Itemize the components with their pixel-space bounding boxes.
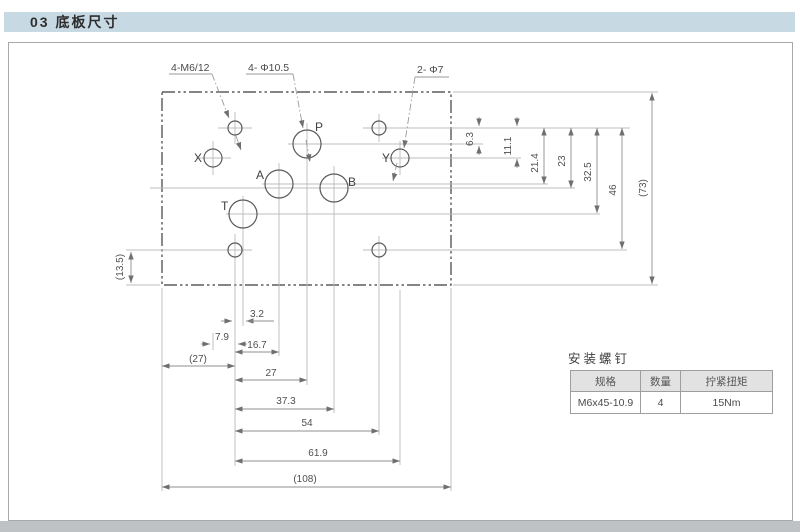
cell-spec: M6x45-10.9 (571, 392, 641, 414)
port-label-y: Y (382, 151, 390, 165)
dim-27-ref: (27) (189, 354, 207, 365)
callout-phi7: 2- Φ7 (417, 64, 444, 76)
col-header-torque: 拧紧扭矩 (681, 371, 773, 392)
dim-6-3: 6.3 (465, 132, 476, 146)
center-lines (126, 112, 630, 466)
dim-61-9: 61.9 (308, 448, 328, 459)
dims-left: (13.5) (115, 252, 131, 283)
dim-23: 23 (557, 155, 568, 167)
dims-bottom: 3.2 7.9 16.7 (27) 27 37.3 54 61.9 (108) (162, 309, 451, 487)
dim-7-9: 7.9 (215, 332, 229, 343)
dim-54: 54 (301, 418, 313, 429)
port-label-x: X (194, 151, 202, 165)
dim-32-5: 32.5 (583, 162, 594, 182)
dims-right: 6.3 11.1 21.4 23 32.5 46 (73) (465, 93, 652, 284)
port-labels: P A B T X Y (194, 120, 390, 213)
port-label-a: A (256, 168, 264, 182)
port-label-b: B (348, 175, 356, 189)
col-header-spec: 规格 (571, 371, 641, 392)
mounting-screw-title: 安装螺钉 (568, 348, 630, 367)
dim-46: 46 (608, 184, 619, 196)
cell-qty: 4 (641, 392, 681, 414)
dim-3-2: 3.2 (250, 309, 264, 320)
table-header-row: 规格 数量 拧紧扭矩 (571, 371, 773, 392)
callout-phi105: 4- Φ10.5 (248, 62, 289, 74)
dim-11-1: 11.1 (503, 136, 514, 155)
mounting-screw-table: 规格 数量 拧紧扭矩 M6x45-10.9 4 15Nm (570, 370, 773, 414)
plate-outline (162, 92, 451, 285)
dim-73: (73) (638, 179, 649, 197)
dim-21-4: 21.4 (530, 153, 541, 173)
port-label-t: T (221, 199, 229, 213)
dimension-drawing: P A B T X Y 4-M6/12 4- Φ10.5 2- Φ7 6.3 1… (0, 0, 800, 532)
table-row: M6x45-10.9 4 15Nm (571, 392, 773, 414)
port-label-p: P (315, 120, 323, 134)
dim-16-7: 16.7 (247, 340, 267, 351)
dim-13-5: (13.5) (115, 254, 126, 280)
dim-37-3: 37.3 (276, 396, 296, 407)
dim-108: (108) (293, 474, 316, 485)
callout-m6: 4-M6/12 (171, 62, 210, 74)
cell-torque: 15Nm (681, 392, 773, 414)
dim-27: 27 (265, 368, 277, 379)
col-header-qty: 数量 (641, 371, 681, 392)
